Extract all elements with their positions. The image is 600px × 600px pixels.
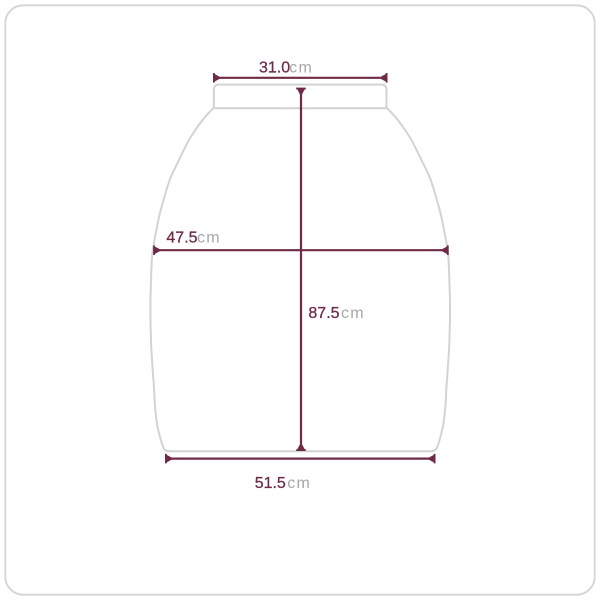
- svg-text:47.5cm: 47.5cm: [166, 229, 220, 246]
- svg-text:87.5cm: 87.5cm: [308, 305, 364, 322]
- svg-text:31.0cm: 31.0cm: [259, 59, 313, 76]
- svg-text:51.5cm: 51.5cm: [255, 475, 311, 492]
